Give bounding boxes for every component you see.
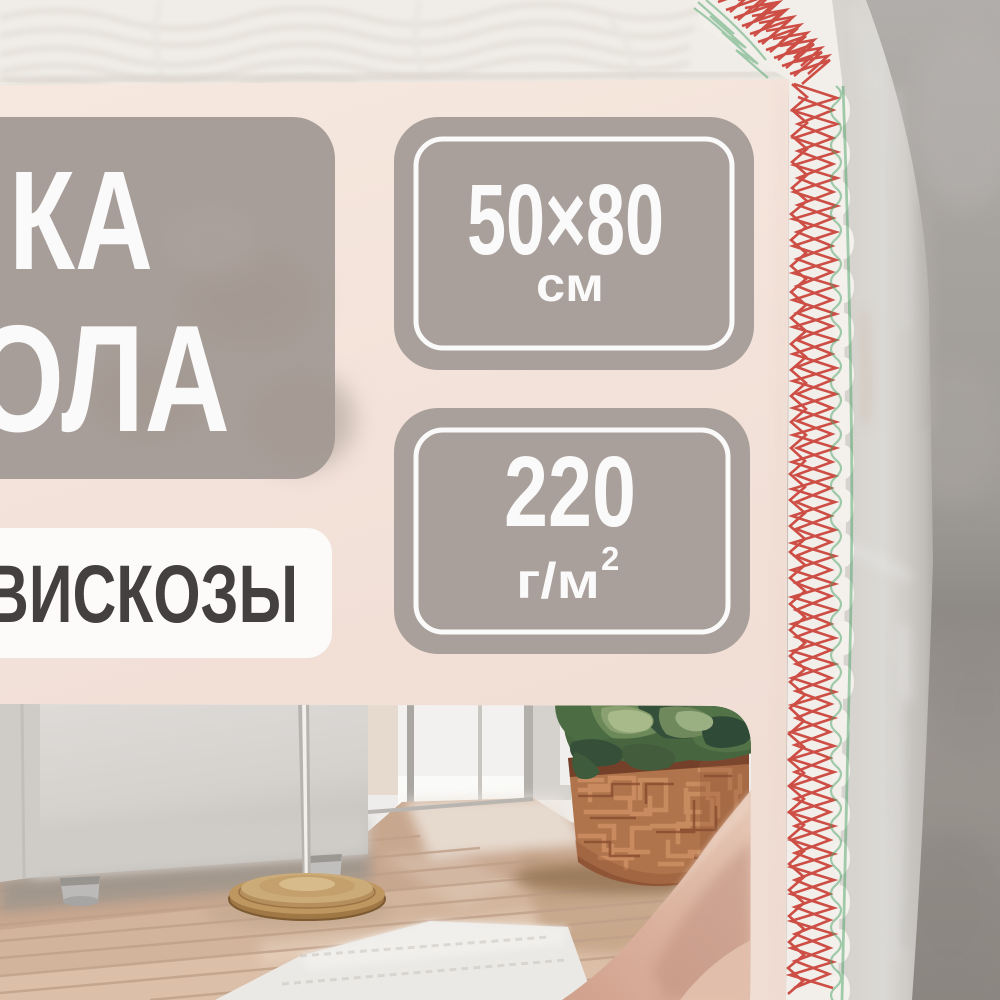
svg-text:г/м: г/м (516, 553, 600, 609)
svg-text:см: см (536, 259, 604, 312)
svg-text:2: 2 (601, 540, 619, 577)
svg-text:220: 220 (504, 436, 636, 548)
svg-text:ВИСКОЗЫ: ВИСКОЗЫ (0, 549, 298, 640)
svg-text:КА: КА (9, 141, 153, 299)
svg-text:ОЛА: ОЛА (0, 294, 230, 464)
